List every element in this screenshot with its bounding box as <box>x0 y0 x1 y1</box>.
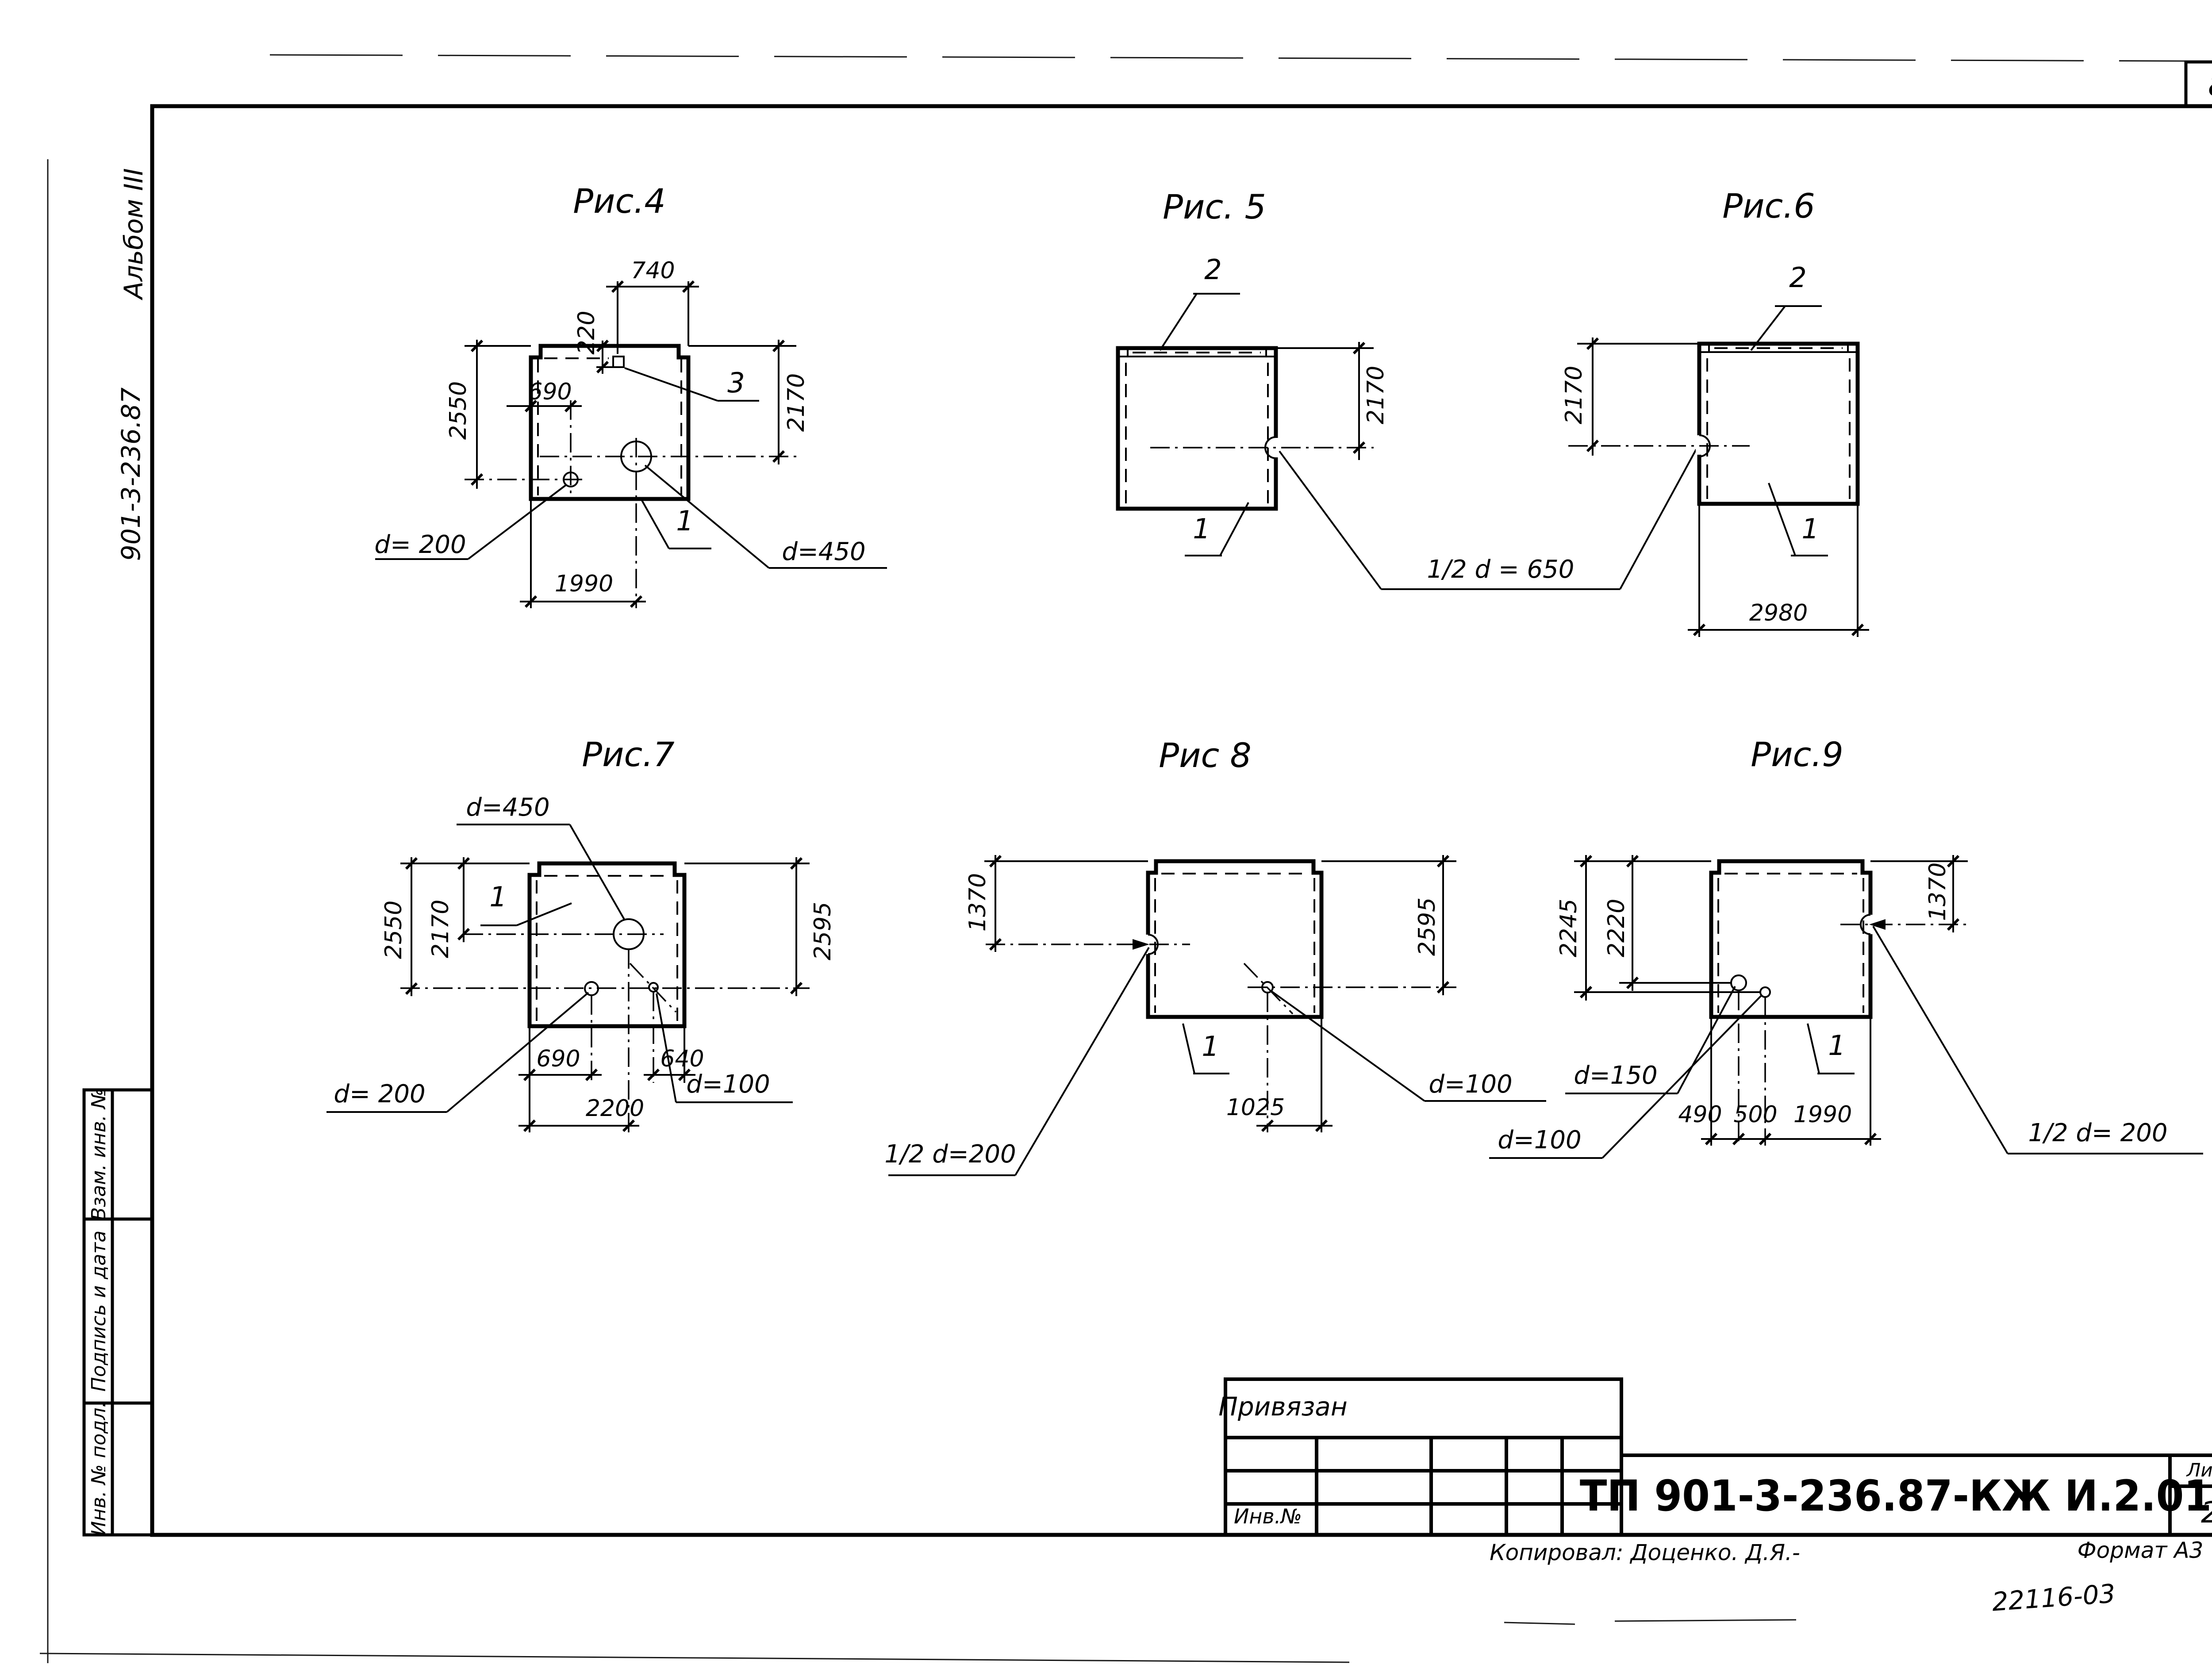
fig6-linework <box>1568 306 1869 637</box>
fig9-dim-2220: 2220 <box>1605 899 1628 957</box>
fig5-label-1: 1 <box>1193 515 1210 543</box>
fig4-dim-2550: 2550 <box>447 381 470 440</box>
fig7-dim-690: 690 <box>536 1047 580 1070</box>
fig7-title: Рис.7 <box>582 738 675 771</box>
fig8-label-1: 1 <box>1202 1033 1219 1060</box>
fig5-title: Рис. 5 <box>1163 190 1266 224</box>
title-block-sheet-number: 2 <box>2201 1498 2212 1527</box>
title-block-note: Привязан <box>1218 1394 1348 1419</box>
fig6-label-1: 1 <box>1801 515 1819 543</box>
fig9-title: Рис.9 <box>1751 738 1843 771</box>
stamp-row-vzam: Взам. инв. № <box>89 1089 109 1221</box>
fig7-dim-2200: 2200 <box>586 1097 644 1120</box>
fig7-dim-2550: 2550 <box>382 901 405 959</box>
fig9-dim-1990: 1990 <box>1793 1103 1852 1126</box>
drawing-linework <box>0 0 2212 1672</box>
fig4-dim-740: 740 <box>631 259 675 282</box>
fig9-label-d100: d=100 <box>1498 1128 1581 1153</box>
fig5-dim-2170: 2170 <box>1364 366 1387 424</box>
fig5-block-outline <box>1118 348 1276 509</box>
fig6-dim-2980: 2980 <box>1749 602 1808 625</box>
fig9-dim-500: 500 <box>1733 1103 1777 1126</box>
fig7-label-d200: d= 200 <box>334 1082 425 1107</box>
fig4-label-3: 3 <box>727 369 745 397</box>
fig9-dim-1370: 1370 <box>1926 863 1949 921</box>
fig9-dim-2245: 2245 <box>1557 899 1580 957</box>
page-number: 8 <box>2208 69 2212 101</box>
margin-doc-number: 901-3-236.87 <box>118 387 144 561</box>
fig9-dim-490: 490 <box>1678 1103 1722 1126</box>
fig9-label-half-d200: 1/2 d= 200 <box>2028 1121 2167 1146</box>
fig9-block-outline <box>1711 861 1870 1017</box>
stamp-row-podpis: Подпись и дата <box>89 1231 109 1392</box>
fig7-label-d100: d=100 <box>686 1072 770 1097</box>
fig5-label-2: 2 <box>1204 256 1221 284</box>
fig8-block-outline <box>1148 861 1321 1017</box>
fig9-label-d150: d=150 <box>1574 1063 1657 1088</box>
fig8-label-d100: d=100 <box>1429 1072 1512 1097</box>
fig4-label-1: 1 <box>676 507 693 535</box>
fig7-label-1: 1 <box>489 883 507 911</box>
fig6-title: Рис.6 <box>1722 189 1815 223</box>
fig4-dim-2170: 2170 <box>785 373 808 432</box>
fig4-label-d450: d=450 <box>782 540 865 564</box>
drawing-sheet: 8 Альбом III 901-3-236.87 Взам. инв. № П… <box>0 0 2212 1672</box>
border-frame <box>152 106 2212 1535</box>
fig6-label-2: 2 <box>1789 264 1806 291</box>
fig4-small-opening <box>613 357 624 367</box>
fig8-dim-1025: 1025 <box>1226 1096 1285 1119</box>
title-block-inv-label: Инв.№ <box>1234 1506 1302 1526</box>
fig8-dim-2595: 2595 <box>1416 897 1439 956</box>
fig7-dim-640: 640 <box>660 1047 704 1070</box>
margin-album-text: Альбом III <box>121 168 146 299</box>
footer-copied-by: Копировал: Доценко. Д.Я.- <box>1490 1542 1800 1564</box>
fig7-dim-2170: 2170 <box>429 900 452 958</box>
frame <box>152 62 2212 1535</box>
title-block-designation: ТП 901-3-236.87-КЖ И.2.01 <box>1580 1475 2212 1517</box>
fig4-title: Рис.4 <box>573 184 666 218</box>
footer-stamp-code: 22116-03 <box>1991 1580 2116 1614</box>
title-block-sheet-label: Лист <box>2187 1461 2212 1480</box>
fig6-dim-2170: 2170 <box>1563 366 1586 424</box>
fig4-label-d200: d= 200 <box>374 533 466 557</box>
fig5-label-half-d650: 1/2 d = 650 <box>1427 557 1575 582</box>
fig7-dim-2595: 2595 <box>811 902 834 960</box>
fig8-label-half-d200: 1/2 d=200 <box>884 1142 1016 1167</box>
fig8-dim-1370: 1370 <box>966 873 989 932</box>
fig4-dim-690: 690 <box>528 380 572 403</box>
fig8-title: Рис 8 <box>1159 739 1252 772</box>
fig4-dim-220: 220 <box>575 311 598 354</box>
fig9-label-1: 1 <box>1828 1032 1845 1059</box>
footer-format: Формат А3 <box>2078 1539 2204 1561</box>
fig7-label-d450: d=450 <box>466 795 549 820</box>
fig4-dim-1990: 1990 <box>555 572 613 595</box>
stamp-row-inv: Инв. № подл. <box>89 1401 109 1536</box>
fig6-block-outline <box>1699 344 1858 504</box>
fig4-block-outline <box>531 346 688 499</box>
